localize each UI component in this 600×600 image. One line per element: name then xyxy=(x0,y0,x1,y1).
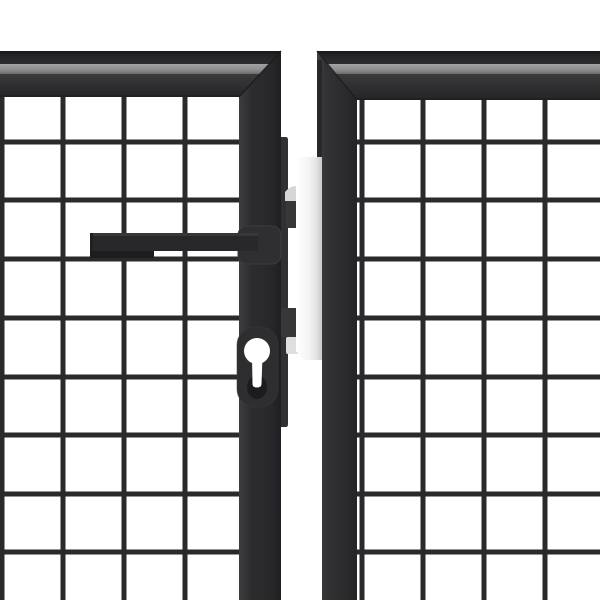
right-stile-outer-strip xyxy=(317,60,322,157)
handle-bar-end-cap xyxy=(90,233,93,251)
keyhole-slot xyxy=(252,356,263,388)
mesh-wire-horizontal xyxy=(0,316,239,321)
product-photo-canvas xyxy=(0,0,600,600)
mesh-wire-horizontal xyxy=(357,140,600,145)
mesh-wire-horizontal xyxy=(357,316,600,321)
mesh-wire-horizontal xyxy=(357,198,600,203)
mesh-wire-vertical xyxy=(360,100,365,600)
mesh-wire-horizontal xyxy=(357,375,600,380)
mesh-wire-vertical xyxy=(0,97,5,600)
mesh-wire-horizontal xyxy=(357,257,600,262)
left-rail-top-highlight xyxy=(0,64,281,74)
mesh-wire-vertical xyxy=(122,97,127,600)
right-rail-upper-face xyxy=(317,51,600,64)
lock-case xyxy=(281,137,288,427)
left-stile xyxy=(239,51,281,600)
mesh-wire-vertical xyxy=(61,97,66,600)
left-top-rail xyxy=(0,51,281,97)
right-rail-top-highlight xyxy=(317,64,600,74)
right-rail-bottom-edge xyxy=(317,98,600,100)
white-lock-plate xyxy=(296,157,322,360)
mesh-wire-horizontal xyxy=(0,375,239,380)
mesh-wire-vertical xyxy=(183,97,188,600)
mesh-wire-horizontal xyxy=(0,433,239,438)
handle-bar-underside xyxy=(90,250,154,258)
mesh-wire-horizontal xyxy=(357,550,600,555)
latch-tab-lower xyxy=(281,308,297,337)
mesh-wire-horizontal xyxy=(0,550,239,555)
mesh-wire-horizontal xyxy=(0,492,239,497)
left-rail-lower-face xyxy=(0,74,281,97)
mesh-wire-vertical xyxy=(482,100,487,600)
mesh-wire-horizontal xyxy=(357,492,600,497)
mesh-wire-horizontal xyxy=(0,198,239,203)
left-rail-upper-face xyxy=(0,51,281,64)
mesh-wire-vertical xyxy=(421,100,426,600)
gate-product-image xyxy=(0,0,600,600)
handle-bar-top-highlight xyxy=(90,233,258,236)
right-top-rail xyxy=(317,51,600,100)
mesh-wire-horizontal xyxy=(357,433,600,438)
right-rail-lower-face xyxy=(317,74,600,100)
mesh-wire-vertical xyxy=(543,100,548,600)
mesh-wire-horizontal xyxy=(0,140,239,145)
latch-tab-upper xyxy=(286,199,297,228)
lock-keyhole-assembly xyxy=(237,327,278,407)
right-stile xyxy=(317,51,357,600)
